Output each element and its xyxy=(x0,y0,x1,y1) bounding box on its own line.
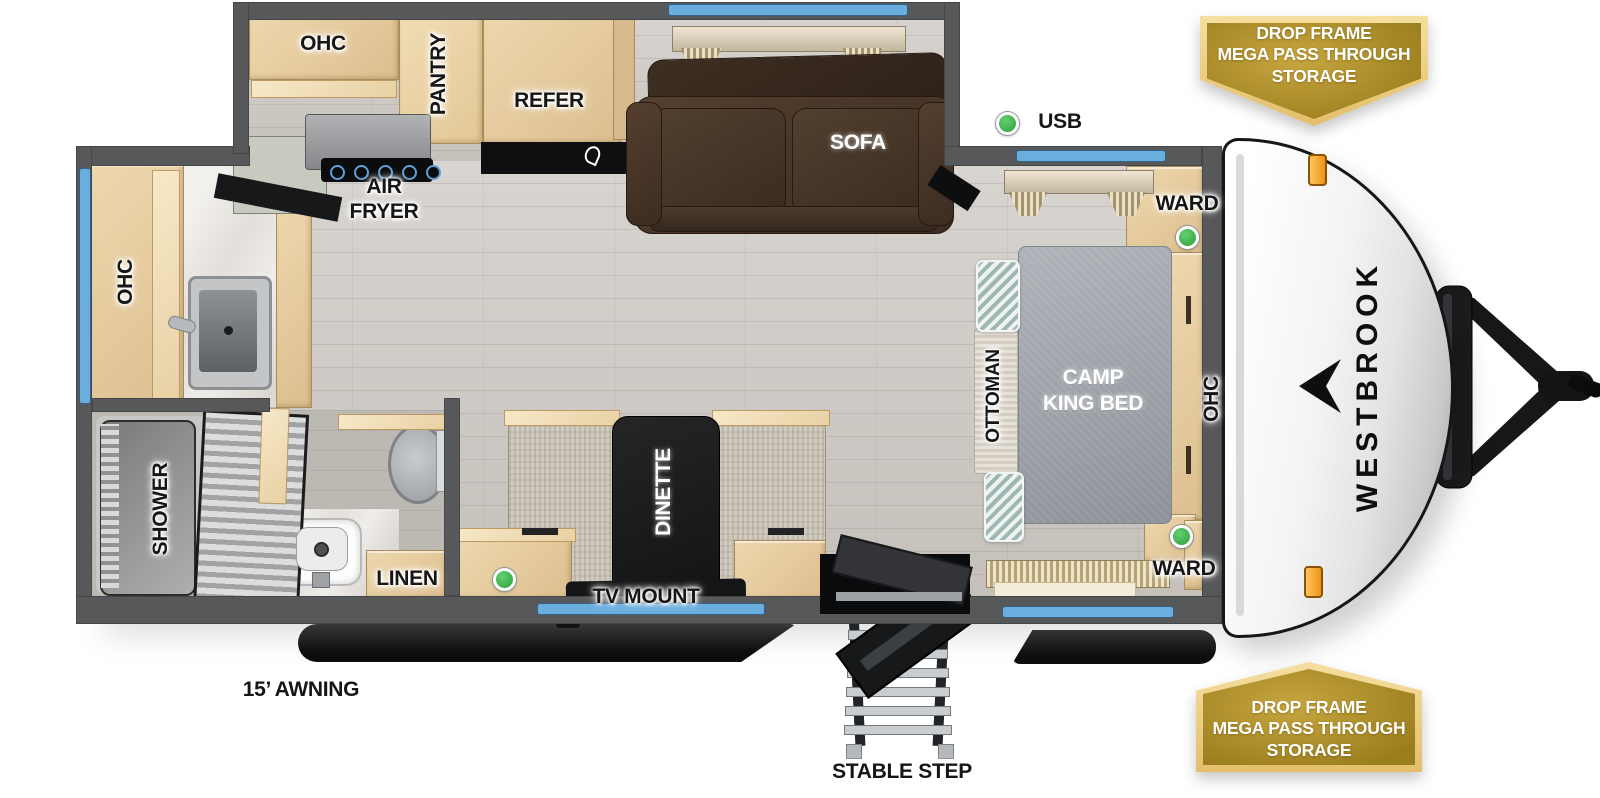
bath-faucet-icon xyxy=(312,572,330,588)
label-bed-2: KING BED xyxy=(1043,392,1143,416)
label-ohc-rear: OHC xyxy=(114,259,138,305)
label-ward-top: WARD xyxy=(1156,192,1219,216)
window-slide-top xyxy=(668,4,908,16)
label-pantry: PANTRY xyxy=(427,33,451,115)
bath-sink-drain xyxy=(314,542,329,557)
pillow xyxy=(976,260,1020,332)
label-shower: SHOWER xyxy=(149,463,173,556)
feature-dot-icon xyxy=(493,568,516,591)
pillow xyxy=(984,472,1024,542)
step-foot xyxy=(938,744,954,759)
rear-drawer-stack xyxy=(276,202,312,408)
dinette-bench-cap xyxy=(504,410,620,426)
label-ottoman: OTTOMAN xyxy=(983,349,1005,443)
cap-seam xyxy=(1236,154,1244,616)
badge-line: DROP FRAME xyxy=(1256,23,1371,44)
bench-bracket-icon xyxy=(522,528,558,535)
burner-icon xyxy=(330,165,345,180)
label-tv-mount: TV MOUNT xyxy=(592,585,699,609)
marker-light-icon xyxy=(1304,566,1323,598)
dinette-bench-cap xyxy=(712,410,830,426)
usb-dot-icon xyxy=(996,112,1019,135)
bathroom-door xyxy=(258,408,289,505)
kitchen-ohc-open-doors xyxy=(251,80,397,98)
entry-sill xyxy=(836,592,962,601)
label-stable-step: STABLE STEP xyxy=(832,760,972,784)
label-usb: USB xyxy=(1038,110,1081,134)
dinette-end-cabinet xyxy=(458,534,572,600)
feature-dot-icon xyxy=(1176,226,1199,249)
label-ward-bottom: WARD xyxy=(1153,557,1216,581)
underbody-tube xyxy=(1012,630,1216,664)
label-linen: LINEN xyxy=(376,567,438,591)
sofa-cushion xyxy=(792,108,932,214)
cabinet-handle-icon xyxy=(1186,296,1191,324)
badge-line: DROP FRAME xyxy=(1251,697,1366,718)
awning-tube xyxy=(298,624,796,662)
brand-arrow-icon xyxy=(1299,359,1341,413)
drop-frame-badge-bottom: DROP FRAME MEGA PASS THROUGH STORAGE xyxy=(1196,662,1422,772)
badge-line: MEGA PASS THROUGH xyxy=(1218,44,1411,65)
badge-line: STORAGE xyxy=(1272,66,1357,87)
label-dinette: DINETTE xyxy=(652,448,676,536)
step-rung xyxy=(845,706,951,716)
label-bed-1: CAMP xyxy=(1063,366,1124,390)
brand-lockup: WESTBROOK xyxy=(1299,260,1385,512)
marker-light-icon xyxy=(1308,154,1327,186)
shower-slat-wall xyxy=(101,424,119,588)
kitchen-sink-drain xyxy=(224,326,233,335)
bathroom-wall-horizontal xyxy=(92,398,270,412)
window-rear-left xyxy=(79,168,91,404)
bed-header-shelf xyxy=(1004,170,1154,194)
badge-line: STORAGE xyxy=(1267,740,1352,761)
label-sofa: SOFA xyxy=(830,131,886,155)
slide-left-wall xyxy=(233,2,249,154)
window-bed-bottom xyxy=(1002,606,1174,618)
sofa-front-lip xyxy=(648,206,940,232)
label-ohc-kitchen: OHC xyxy=(300,32,346,56)
badge-line: MEGA PASS THROUGH xyxy=(1213,718,1406,739)
refer-cabinet xyxy=(483,10,621,144)
label-refer: REFER xyxy=(514,89,584,113)
refer-counter-black xyxy=(481,142,631,174)
burner-icon xyxy=(402,165,417,180)
shower-sliding-door xyxy=(193,409,309,612)
top-wall-rear xyxy=(76,146,250,166)
toilet-shelf xyxy=(338,414,446,430)
label-ohc-bedside: OHC xyxy=(1200,376,1224,422)
cabinet-handle-icon xyxy=(1186,446,1191,474)
step-foot xyxy=(846,744,862,759)
rear-ohc-open-door xyxy=(152,170,180,402)
burner-icon xyxy=(426,165,441,180)
rv-floorplan: WESTBROOK DROP FRAME MEGA PASS THROUGH S… xyxy=(0,0,1600,798)
label-air-fryer-1: AIR xyxy=(366,175,401,199)
drop-frame-badge-top: DROP FRAME MEGA PASS THROUGH STORAGE xyxy=(1200,16,1428,126)
feature-dot-icon xyxy=(1170,525,1193,548)
step-rung xyxy=(844,725,952,735)
bench-bracket-icon xyxy=(768,528,804,535)
bathroom-wall-vertical xyxy=(444,398,460,596)
label-awning: 15’ AWNING xyxy=(243,678,359,702)
slide-right-wall xyxy=(944,2,960,154)
sofa-armrest xyxy=(626,102,662,226)
window-bed-top xyxy=(1016,150,1166,162)
label-air-fryer-2: FRYER xyxy=(350,200,419,224)
brand-name: WESTBROOK xyxy=(1351,260,1385,512)
sofa-cushion xyxy=(652,108,786,214)
dinette-bench-base xyxy=(734,540,826,600)
